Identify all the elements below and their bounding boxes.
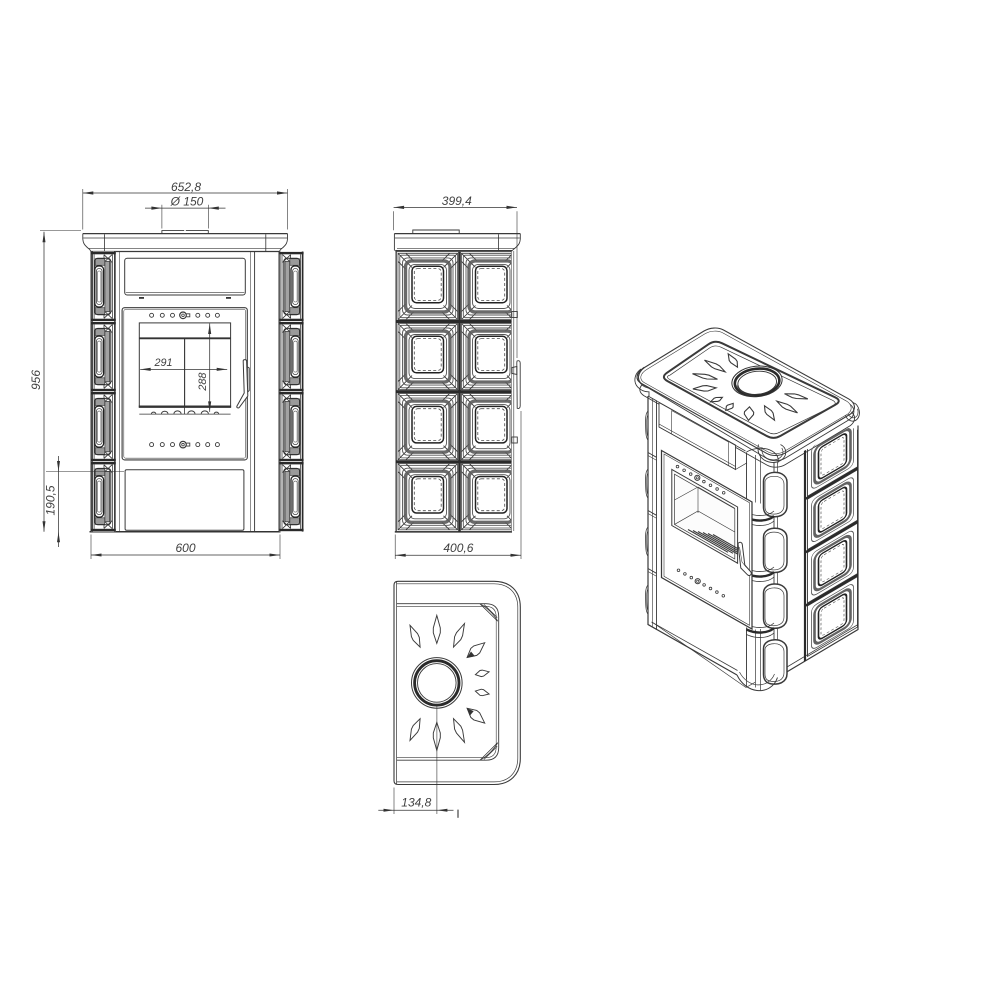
svg-text:291: 291: [153, 357, 172, 369]
svg-text:288: 288: [197, 373, 209, 392]
svg-text:134,8: 134,8: [401, 796, 431, 810]
svg-text:956: 956: [29, 370, 43, 390]
svg-text:Ø 150: Ø 150: [170, 195, 204, 209]
svg-text:190,5: 190,5: [43, 485, 57, 515]
svg-text:600: 600: [175, 541, 195, 555]
svg-text:400,6: 400,6: [443, 541, 473, 555]
svg-text:399,4: 399,4: [442, 194, 472, 208]
svg-text:652,8: 652,8: [171, 180, 201, 194]
